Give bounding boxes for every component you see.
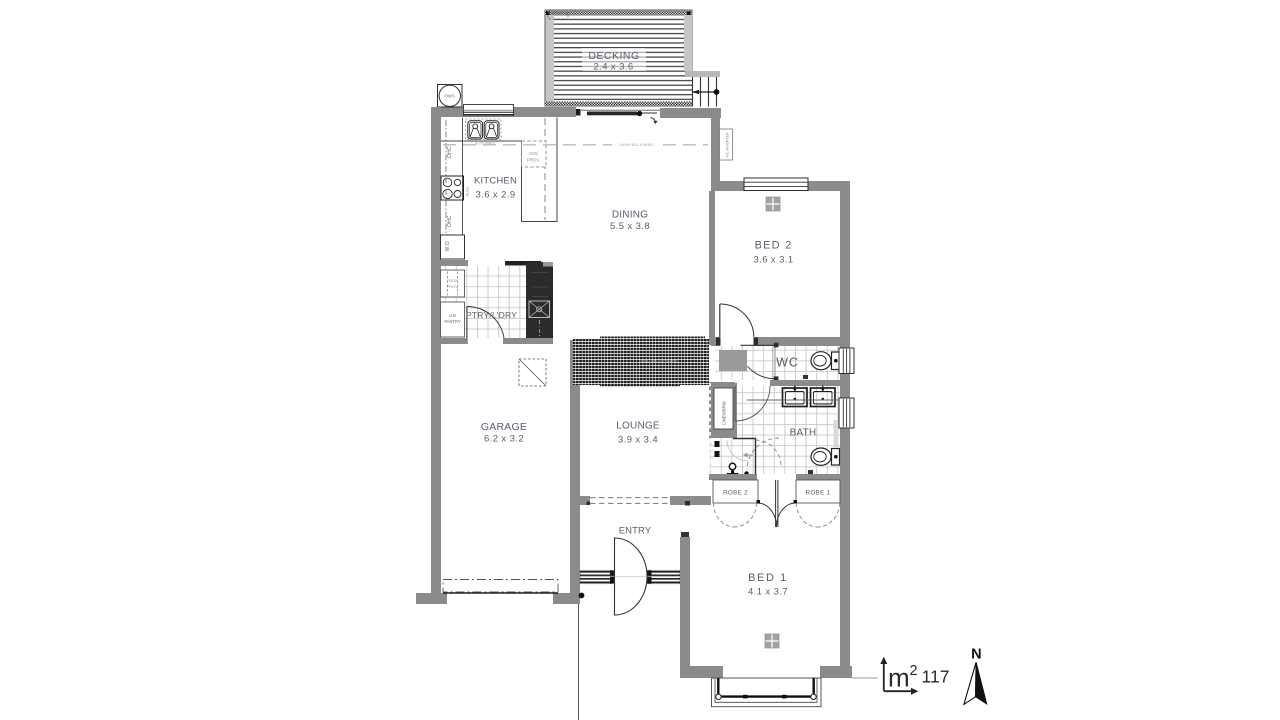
svg-text:2.4 x 3.6: 2.4 x 3.6: [593, 62, 633, 73]
svg-text:BED 1: BED 1: [748, 572, 788, 584]
svg-text:ENTRY: ENTRY: [619, 526, 652, 537]
svg-text:LOUNGE: LOUNGE: [616, 421, 660, 432]
svg-text:5.5 x 3.8: 5.5 x 3.8: [610, 221, 650, 232]
svg-text:6.2 x 3.2: 6.2 x 3.2: [484, 434, 524, 445]
svg-text:PROV.: PROV.: [446, 284, 458, 289]
svg-text:BED 2: BED 2: [755, 240, 793, 252]
svg-text:2400H BULKHEAD: 2400H BULKHEAD: [619, 142, 654, 147]
svg-text:HWS: HWS: [445, 94, 456, 99]
svg-text:2: 2: [910, 663, 918, 679]
svg-text:D/W: D/W: [529, 151, 538, 156]
svg-text:m: m: [888, 663, 910, 693]
svg-text:PROV.: PROV.: [527, 158, 540, 163]
svg-text:WC: WC: [776, 356, 799, 370]
svg-text:3.9 x 3.4: 3.9 x 3.4: [618, 435, 658, 446]
svg-text:OHC: OHC: [447, 146, 453, 158]
svg-text:U.B: U.B: [449, 313, 456, 318]
svg-text:DECKING: DECKING: [588, 50, 639, 62]
svg-text:ROBE 2: ROBE 2: [723, 490, 748, 497]
svg-text:ELEC: ELEC: [466, 186, 470, 196]
svg-text:4.1 x 3.7: 4.1 x 3.7: [748, 587, 788, 598]
svg-text:LINEN/BRM: LINEN/BRM: [722, 401, 727, 425]
svg-text:3.6 x 3.1: 3.6 x 3.1: [753, 255, 793, 266]
svg-text:W.O: W.O: [445, 241, 451, 251]
svg-text:900H BALUSTRADE: 900H BALUSTRADE: [640, 359, 678, 364]
svg-text:3.6 x 2.9: 3.6 x 2.9: [475, 190, 515, 201]
svg-text:DINING: DINING: [612, 210, 648, 221]
svg-text:PTRY/L’DRY: PTRY/L’DRY: [466, 310, 517, 320]
svg-text:A/C INVERTER: A/C INVERTER: [726, 132, 730, 157]
svg-text:ROBE 1: ROBE 1: [806, 490, 831, 497]
svg-text:117: 117: [922, 667, 950, 687]
svg-text:GARAGE: GARAGE: [481, 421, 527, 433]
svg-text:KITCHEN: KITCHEN: [474, 176, 517, 187]
svg-text:OHC: OHC: [447, 215, 453, 227]
svg-text:PANTRY: PANTRY: [444, 319, 460, 324]
svg-text:N: N: [971, 647, 981, 663]
svg-text:FDGE: FDGE: [447, 278, 458, 283]
svg-text:BATH: BATH: [790, 428, 817, 439]
